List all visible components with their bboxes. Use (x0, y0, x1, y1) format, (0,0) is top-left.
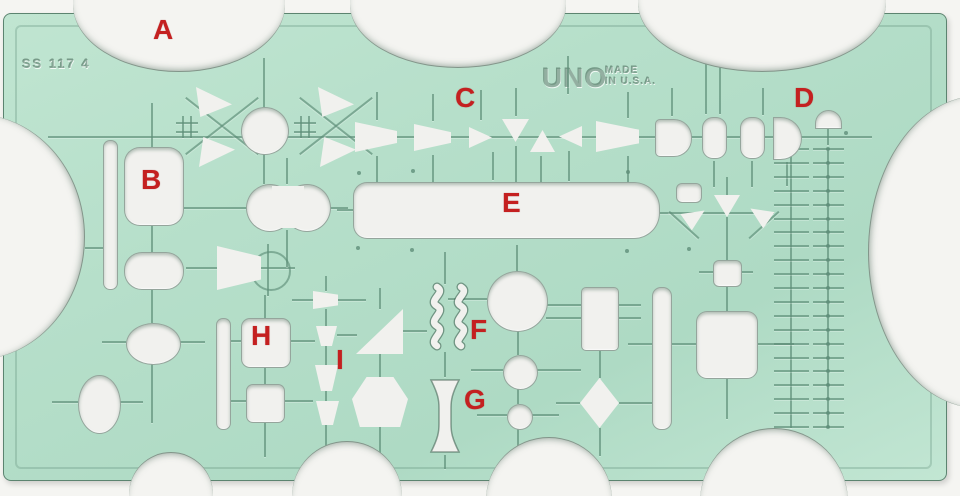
engraved-line (289, 340, 315, 342)
tray-ladder-bead (826, 286, 830, 290)
cutout-rectangle (581, 287, 619, 351)
tray-ladder-rung (774, 231, 809, 233)
engraved-line (151, 288, 153, 323)
annotation-letter-d: D (794, 84, 814, 112)
annotation-letter-a: A (153, 16, 173, 44)
cutout-slot-long (652, 287, 672, 430)
engraved-line (628, 343, 652, 345)
tray-ladder-bead (826, 147, 830, 151)
engraved-tick (627, 92, 629, 118)
cutout-square-small (246, 384, 285, 423)
drill-dot (356, 246, 360, 250)
engraved-tick (713, 161, 715, 187)
engraved-tick (671, 88, 673, 116)
engraved-line (325, 309, 327, 326)
tray-ladder-bead (826, 425, 830, 429)
cutout-circle-medium-f (503, 355, 538, 390)
engraved-tick (567, 56, 569, 94)
engraved-line (517, 388, 519, 404)
tray-ladder-bead (826, 272, 830, 276)
tray-ladder-rung (774, 343, 809, 345)
engraved-line (403, 330, 427, 332)
tray-ladder-bead (826, 230, 830, 234)
engraved-line (190, 116, 192, 138)
engraved-line (308, 116, 310, 138)
engraved-line (517, 330, 519, 355)
model-number-text: SS 117 4 (22, 56, 91, 71)
tray-ladder-rung (774, 218, 809, 220)
cutout-pill-c1 (702, 117, 727, 159)
made-in-text-line2: IN U.S.A. (605, 77, 656, 87)
tray-ladder-rung (774, 176, 809, 178)
tray-ladder-bead (826, 342, 830, 346)
engraved-line (379, 354, 381, 377)
tray-ladder-rung (774, 245, 809, 247)
cutout-pill-small-right (676, 183, 702, 203)
tray-ladder-bead (826, 300, 830, 304)
annotation-letter-h: H (251, 322, 271, 350)
engraved-line (379, 288, 381, 309)
engraved-line (325, 391, 327, 401)
engraved-line (619, 402, 652, 404)
tray-ladder-bead (826, 244, 830, 248)
engraved-line (263, 153, 265, 184)
cutout-peanut-joint (272, 186, 304, 228)
engraved-line (176, 131, 198, 133)
annotation-letter-f: F (470, 316, 487, 344)
drill-dot (410, 248, 414, 252)
engraved-line (286, 158, 288, 184)
engraved-line (52, 401, 78, 403)
engraved-tick (705, 57, 707, 114)
engraved-tick (540, 156, 542, 182)
annotation-letter-e: E (502, 189, 521, 217)
engraved-line (338, 299, 366, 301)
tray-ladder-1 (774, 148, 809, 428)
engraved-line (264, 366, 266, 384)
drill-dot (357, 171, 361, 175)
cutout-square-large (696, 311, 758, 379)
engraved-line (180, 207, 246, 209)
coil-cutout (428, 284, 446, 350)
engraved-line (186, 267, 217, 269)
engraved-tick (432, 155, 434, 185)
tray-ladder-bead (826, 175, 830, 179)
engraved-line (325, 346, 327, 365)
engraved-line (294, 131, 316, 133)
engraved-tick (376, 92, 378, 120)
tray-ladder-bead (826, 203, 830, 207)
engraved-line (151, 103, 153, 147)
engraved-tick (432, 94, 434, 121)
tray-ladder-rung (774, 162, 809, 164)
tray-ladder-bead (826, 217, 830, 221)
tray-ladder-rung (774, 398, 809, 400)
coil-cutout (452, 284, 470, 350)
tray-ladder-bead (826, 356, 830, 360)
annotation-letter-i: I (336, 346, 344, 374)
engraved-line (444, 455, 446, 469)
engraved-line (444, 252, 446, 284)
tray-ladder-bead (826, 258, 830, 262)
tray-ladder-bead (826, 411, 830, 415)
engraved-line (300, 116, 302, 138)
tray-ladder-bead (826, 314, 830, 318)
engraved-line (151, 363, 153, 423)
engraved-line (264, 421, 266, 457)
cutout-circle (241, 107, 289, 155)
cutout-pill-c2 (740, 117, 765, 159)
engraved-line (176, 122, 198, 124)
engraved-tick (751, 161, 753, 187)
tray-ladder-rung (774, 329, 809, 331)
annotation-letter-c: C (455, 84, 475, 112)
tray-ladder-bead (826, 397, 830, 401)
tray-ladder-bead (826, 383, 830, 387)
engraved-line (85, 247, 103, 249)
cutout-circle-small-f (507, 404, 533, 430)
engraved-line (726, 177, 728, 195)
engraved-line (182, 116, 184, 138)
tray-ladder-rung (774, 259, 809, 261)
engraved-line (179, 341, 205, 343)
drill-dot (625, 249, 629, 253)
tray-ladder-bead (826, 189, 830, 193)
engraved-line (617, 317, 641, 319)
scanned-stencil-photo: SS 117 4 UNO MADE IN U.S.A. (0, 0, 960, 496)
tray-ladder-rung (774, 273, 809, 275)
engraved-line (294, 122, 316, 124)
drill-dot (626, 170, 630, 174)
engraved-line (337, 334, 357, 336)
tray-ladder-rung (774, 357, 809, 359)
engraved-line (230, 400, 246, 402)
engraved-line (119, 401, 143, 403)
tray-ladder-rung (774, 412, 809, 414)
made-in-text-line1: MADE (605, 66, 638, 76)
annotation-letter-b: B (141, 166, 161, 194)
engraved-line (151, 224, 153, 252)
engraved-line (670, 343, 696, 345)
tray-ladder-bead (826, 328, 830, 332)
brand-text: UNO (542, 62, 607, 94)
tray-ladder-2 (813, 148, 844, 428)
cutout-slot-h (216, 318, 231, 430)
tray-ladder-rung (774, 287, 809, 289)
engraved-line (726, 217, 728, 260)
cutout-ellipse-horizontal (126, 323, 181, 365)
annotation-letter-g: G (464, 386, 486, 414)
engraved-line (263, 58, 265, 107)
hourglass-cutout (427, 377, 463, 455)
engraved-line (292, 299, 313, 301)
tray-ladder-bead (826, 161, 830, 165)
tray-ladder-rung (774, 204, 809, 206)
engraved-line (599, 349, 601, 378)
cutout-circle-large-f (487, 271, 548, 332)
engraved-tick (515, 146, 517, 186)
engraved-line (827, 127, 829, 145)
engraved-line (726, 285, 728, 311)
engraved-line (264, 295, 266, 318)
tray-ladder-bead (826, 369, 830, 373)
tray-ladder-rung (774, 301, 809, 303)
engraved-line (556, 402, 580, 404)
cutout-square-crosshair (713, 260, 742, 287)
engraved-line (546, 317, 581, 319)
engraved-line (516, 245, 518, 271)
engraved-line (536, 369, 581, 371)
engraved-line (617, 304, 641, 306)
engraved-line (471, 369, 503, 371)
cutout-slot-left (103, 140, 118, 290)
cutout-round-nose-trap (655, 119, 692, 157)
cutout-ellipse-vertical (78, 375, 121, 434)
drill-dot (411, 169, 415, 173)
drill-dot (844, 131, 848, 135)
engraved-tick (492, 152, 494, 180)
tray-ladder-rung (774, 384, 809, 386)
engraved-tick (515, 88, 517, 116)
engraved-line (531, 414, 559, 416)
engraved-line (283, 400, 313, 402)
tray-ladder-rung (774, 190, 809, 192)
engraved-line (325, 276, 327, 291)
engraved-line (599, 428, 601, 456)
drill-dot (687, 247, 691, 251)
engraved-line (444, 352, 446, 377)
engraved-line (726, 377, 728, 419)
tray-ladder-rung (774, 315, 809, 317)
engraved-line (102, 341, 126, 343)
engraved-tick (568, 151, 570, 181)
tray-ladder-rung (774, 370, 809, 372)
engraved-line (337, 209, 353, 211)
cutout-pill (124, 252, 184, 290)
engraved-line (546, 304, 581, 306)
engraved-tick (762, 88, 764, 115)
engraved-tick (480, 90, 482, 120)
